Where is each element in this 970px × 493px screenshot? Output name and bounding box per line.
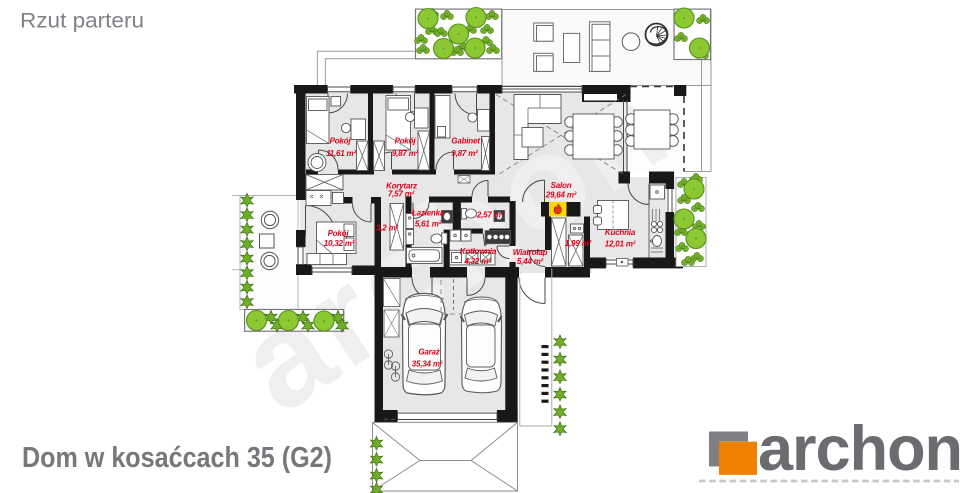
- svg-text:3,2 m²: 3,2 m²: [376, 224, 398, 233]
- svg-text:Pokój: Pokój: [330, 137, 352, 146]
- svg-text:archon: archon: [758, 414, 962, 484]
- svg-text:Rzut parteru: Rzut parteru: [20, 9, 144, 33]
- svg-text:Pokój: Pokój: [395, 137, 417, 146]
- svg-text:Łazienka: Łazienka: [411, 209, 445, 218]
- svg-text:5,61 m²: 5,61 m²: [415, 220, 442, 229]
- svg-text:2,57 m²: 2,57 m²: [476, 211, 504, 220]
- svg-text:Dom w kosaćcach 35 (G2): Dom w kosaćcach 35 (G2): [22, 442, 332, 474]
- svg-text:Garaż: Garaż: [418, 348, 439, 357]
- svg-text:Kuchnia: Kuchnia: [605, 228, 636, 237]
- svg-text:9,87 m²: 9,87 m²: [392, 149, 419, 158]
- svg-text:1,99 m²: 1,99 m²: [565, 239, 592, 248]
- svg-text:Kotłownia: Kotłownia: [460, 247, 497, 256]
- svg-text:29,64 m²: 29,64 m²: [545, 191, 577, 200]
- svg-text:9,87 m²: 9,87 m²: [451, 149, 478, 158]
- svg-text:11,61 m²: 11,61 m²: [326, 149, 356, 158]
- svg-text:35,34 m²: 35,34 m²: [412, 360, 443, 369]
- svg-text:Wiatrołap: Wiatrołap: [513, 248, 548, 257]
- svg-text:10,32 m²: 10,32 m²: [324, 239, 355, 248]
- svg-text:Salon: Salon: [551, 181, 572, 190]
- svg-text:4,32 m²: 4,32 m²: [463, 257, 491, 266]
- svg-text:12,01 m²: 12,01 m²: [605, 240, 636, 249]
- svg-text:5,44 m²: 5,44 m²: [517, 257, 544, 266]
- svg-text:Gabinet: Gabinet: [451, 137, 480, 146]
- svg-text:7,57 m²: 7,57 m²: [388, 190, 415, 199]
- svg-text:Pokój: Pokój: [328, 229, 350, 238]
